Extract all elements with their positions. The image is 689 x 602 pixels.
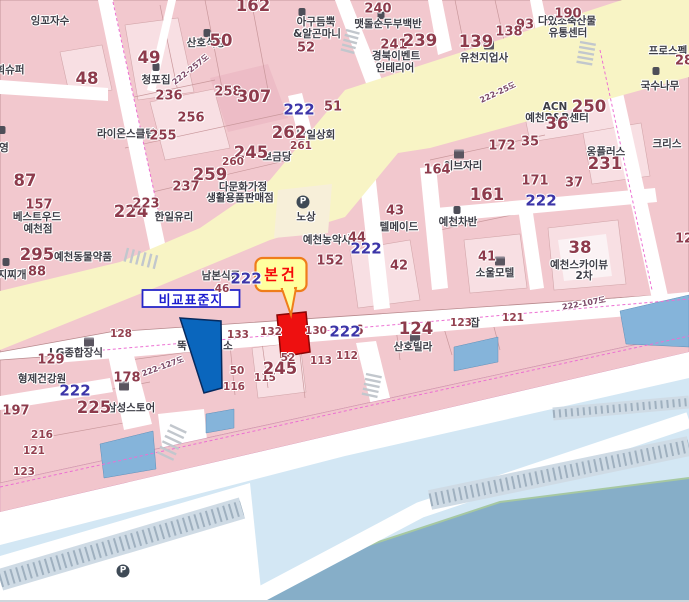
map-canvas[interactable]: 본건 비교표준지 PP 잉꼬자수희슈퍼산호식당아구듬뿍&알곤마니청포집맷돌순두부… (0, 0, 689, 602)
street-parking-strip (274, 184, 332, 238)
building-footprint (558, 234, 612, 281)
subject-parcel[interactable] (277, 312, 310, 357)
comparison-label-box[interactable] (143, 290, 240, 307)
map-graphics (0, 0, 689, 600)
